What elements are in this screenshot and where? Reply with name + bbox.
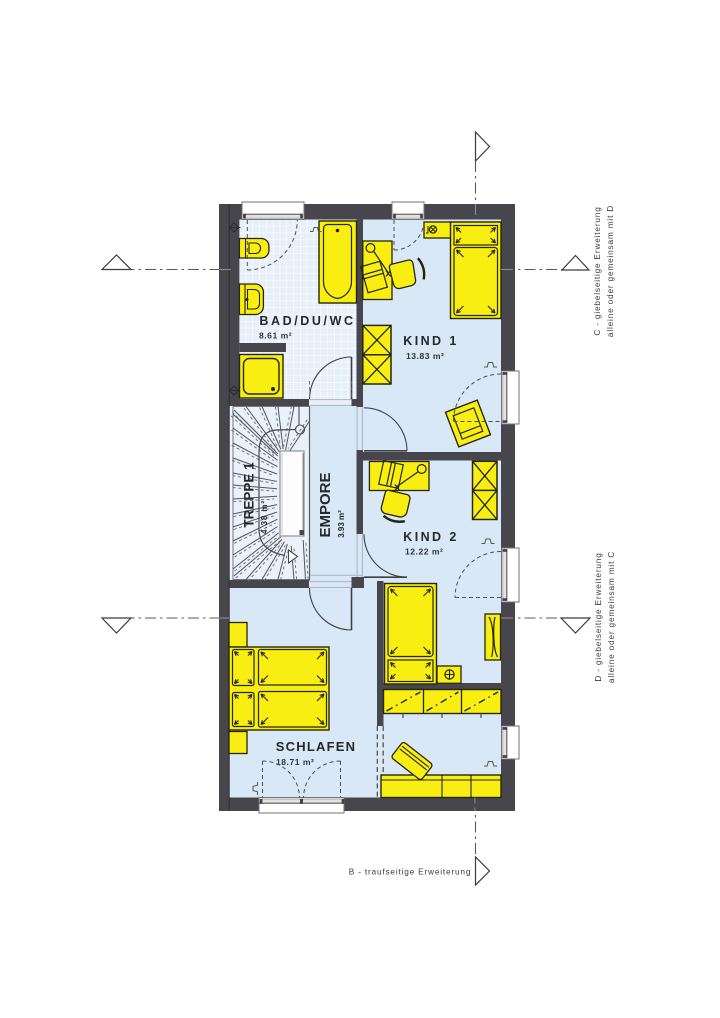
svg-text:KIND 1: KIND 1: [403, 334, 458, 348]
svg-text:alleine oder gemeinsam mit D: alleine oder gemeinsam mit D: [605, 205, 615, 337]
svg-text:13.83 m²: 13.83 m²: [406, 351, 444, 361]
svg-text:18.71 m²: 18.71 m²: [276, 757, 314, 767]
svg-text:C - giebelseitige Erweiterung: C - giebelseitige Erweiterung: [592, 206, 602, 335]
svg-text:4.38 m²: 4.38 m²: [260, 500, 269, 534]
svg-text:3.93 m²: 3.93 m²: [337, 510, 346, 538]
svg-text:EMPORE: EMPORE: [317, 472, 334, 537]
svg-text:8.61 m²: 8.61 m²: [259, 331, 292, 341]
svg-text:D - giebelseitige Erweiterung: D - giebelseitige Erweiterung: [593, 552, 603, 681]
svg-text:BAD/DU/WC: BAD/DU/WC: [259, 314, 355, 328]
svg-text:B - traufseitige Erweiterung: B - traufseitige Erweiterung: [349, 867, 471, 877]
svg-text:KIND 2: KIND 2: [403, 530, 458, 544]
svg-text:TREPPE 1: TREPPE 1: [242, 462, 257, 528]
svg-text:alleine oder gemeinsam mit C: alleine oder gemeinsam mit C: [606, 551, 616, 683]
svg-text:12.22 m²: 12.22 m²: [405, 547, 443, 557]
svg-text:SCHLAFEN: SCHLAFEN: [276, 739, 356, 754]
